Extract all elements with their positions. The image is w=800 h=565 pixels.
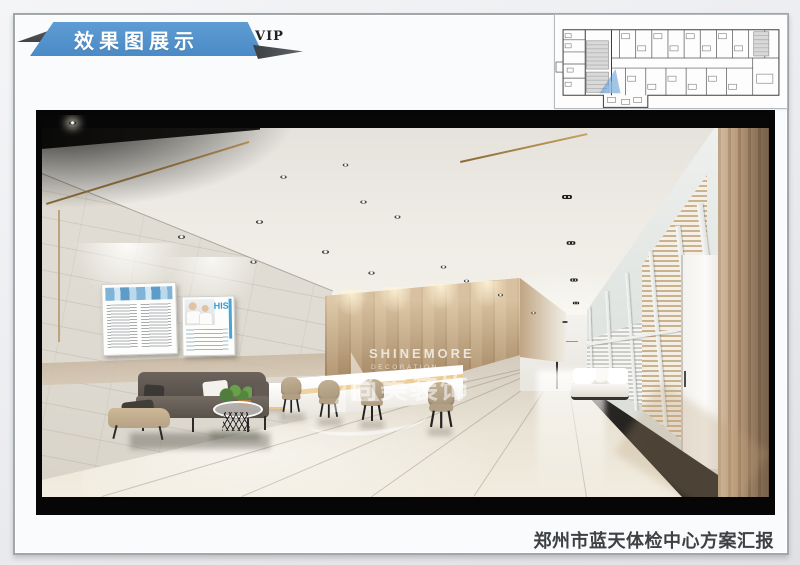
poster-image-strip <box>105 286 172 301</box>
wall-poster-text <box>101 282 178 356</box>
wash-light-glow <box>424 284 458 310</box>
presentation-slide: 效果图展示 VIP <box>0 0 800 565</box>
recessed-light <box>250 260 256 264</box>
poster-text-lines <box>186 329 228 352</box>
recessed-light <box>178 235 185 239</box>
guest-chair <box>281 377 301 413</box>
table-reflection <box>210 431 260 441</box>
watermark-brand: SHINEMORE <box>369 346 475 361</box>
corridor-bench-seat <box>571 384 629 400</box>
poster-text-column <box>107 304 138 349</box>
chair-reflection <box>281 413 305 421</box>
chair-reflection <box>428 428 452 436</box>
twin-spot-light <box>573 302 579 305</box>
poster-text-column <box>141 303 172 348</box>
photo-top-band <box>42 115 769 128</box>
recessed-light <box>464 280 469 283</box>
twin-spot-light <box>567 241 576 245</box>
recessed-light <box>256 220 263 224</box>
section-title: 效果图展示 <box>30 25 199 54</box>
twin-spot-light <box>562 321 567 323</box>
rendering-photo: HIS <box>36 110 775 515</box>
recessed-light <box>368 271 374 275</box>
wall-corner-trim <box>58 210 60 342</box>
floor-plan-thumbnail <box>554 14 788 109</box>
recessed-light <box>69 121 76 125</box>
wall-poster-his: HIS <box>181 296 235 357</box>
poster-accent-bar <box>229 299 233 339</box>
wash-light-glow <box>334 290 368 316</box>
poster-staff-photo <box>185 299 215 326</box>
recessed-light <box>322 250 329 254</box>
door-handle <box>684 371 686 387</box>
recessed-light <box>360 200 366 204</box>
watermark-brand-cn: 尚美装饰 <box>350 367 470 407</box>
twin-spot-light <box>562 195 572 199</box>
twin-spot-light <box>570 278 578 281</box>
recessed-light <box>343 163 349 166</box>
vip-badge: VIP <box>255 29 284 44</box>
recessed-light <box>441 265 447 268</box>
wash-light-glow <box>378 287 412 313</box>
slide-caption: 郑州市蓝天体检中心方案汇报 <box>534 527 775 553</box>
recessed-light <box>395 215 401 218</box>
section-banner: 效果图展示 <box>30 22 264 56</box>
recessed-light <box>498 294 503 297</box>
recessed-light <box>531 312 535 314</box>
lobby-rendering-scene: HIS <box>42 115 769 497</box>
coffee-table-base <box>222 412 250 431</box>
poster-his-label: HIS <box>214 301 229 311</box>
gold-ceiling-trim <box>460 133 587 163</box>
floor-plan <box>555 15 787 108</box>
